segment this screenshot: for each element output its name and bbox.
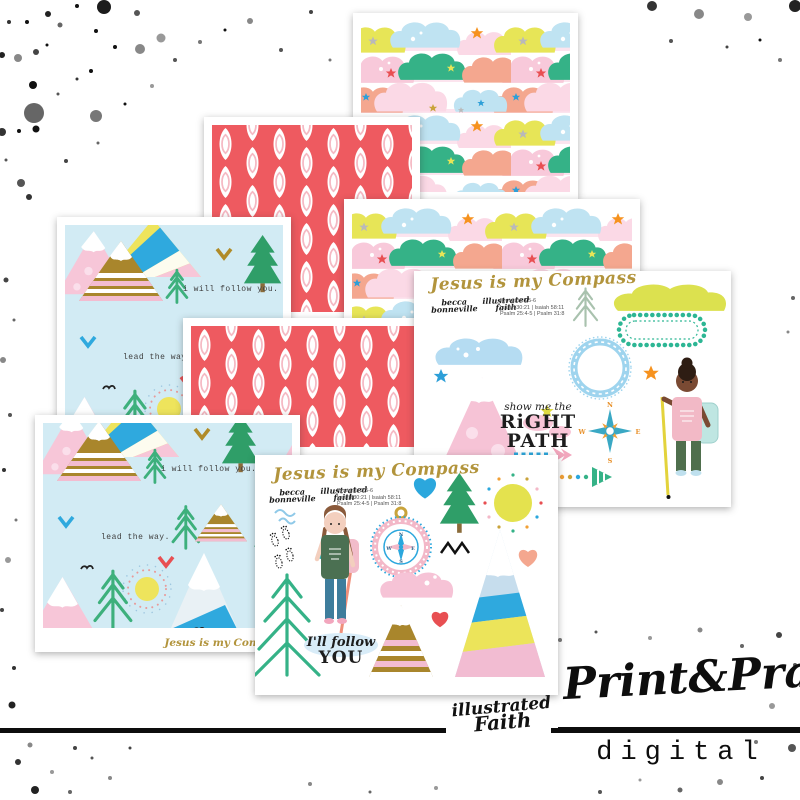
big-striped-mountain-icon bbox=[444, 530, 558, 693]
red-heart-icon bbox=[432, 612, 449, 627]
confetti-arrow-icon bbox=[552, 467, 612, 487]
compass-n: N bbox=[607, 401, 613, 409]
follow-you-phrase: I'll follow YOU bbox=[301, 635, 381, 667]
compass-n: N bbox=[399, 532, 404, 538]
pine-tree-outline-icon bbox=[574, 288, 597, 325]
compass-rose-icon: N E S W bbox=[577, 401, 640, 465]
confetti-sun-icon bbox=[483, 473, 542, 532]
orange-star-icon bbox=[643, 366, 659, 380]
becca-bonneville-logo: beccabonneville bbox=[269, 488, 316, 504]
pine-tree-icon bbox=[440, 473, 479, 533]
blue-birds-icon bbox=[275, 510, 295, 524]
chartreuse-cloud-icon bbox=[614, 285, 726, 311]
blue-heart-icon bbox=[414, 478, 436, 499]
zigzag-icon bbox=[441, 543, 469, 553]
compass-w: W bbox=[385, 546, 392, 552]
compass-s: S bbox=[399, 559, 403, 565]
blue-cloud-icon bbox=[436, 339, 523, 365]
becca-bonneville-logo: beccabonneville bbox=[431, 298, 478, 314]
stitched-circle-frame-icon bbox=[569, 337, 631, 399]
scripture-references: Proverbs 3:5-6 Isaiah 30:21 | Isaiah 58:… bbox=[500, 298, 564, 318]
peach-heart-icon bbox=[519, 550, 537, 567]
footprints-icon bbox=[269, 525, 294, 569]
scallop-frame-icon bbox=[619, 315, 705, 345]
right-path-phrase: show me the RiGHT PATH bbox=[498, 401, 578, 451]
compass-w: W bbox=[577, 428, 586, 436]
hiker-girl-braids-sticker bbox=[317, 505, 359, 637]
product-preview-image: i will follow you. lead the way. bbox=[0, 0, 800, 800]
compass-sticker-icon: N S E W bbox=[371, 508, 431, 577]
scripture-references: Proverbs 3:5-6 Isaiah 30:21 | Isaiah 58:… bbox=[337, 488, 401, 508]
compass-e: E bbox=[636, 428, 641, 436]
pink-cloud-icon bbox=[380, 572, 453, 597]
hiker-girl-sticker bbox=[662, 358, 718, 500]
sticker-sheet-bottom: N S E W bbox=[255, 455, 558, 695]
compass-e: E bbox=[411, 546, 415, 552]
compass-s: S bbox=[608, 457, 613, 465]
blue-star-icon bbox=[434, 369, 449, 382]
